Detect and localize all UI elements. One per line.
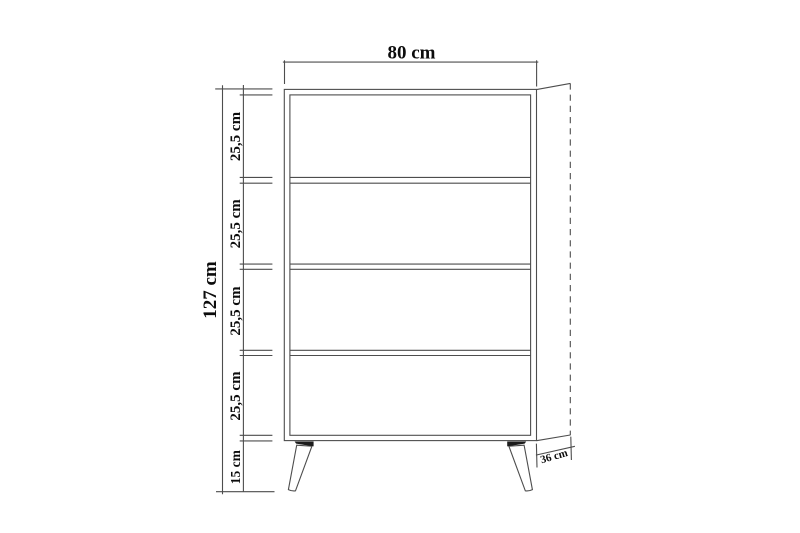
svg-text:80 cm: 80 cm (387, 43, 435, 64)
svg-text:15 cm: 15 cm (228, 449, 243, 484)
svg-text:36 cm: 36 cm (539, 447, 569, 466)
svg-text:25,5 cm: 25,5 cm (228, 286, 244, 336)
svg-text:127 cm: 127 cm (200, 261, 221, 319)
svg-text:25,5 cm: 25,5 cm (228, 199, 244, 249)
svg-text:25,5 cm: 25,5 cm (228, 371, 244, 421)
svg-text:25,5 cm: 25,5 cm (228, 111, 244, 161)
